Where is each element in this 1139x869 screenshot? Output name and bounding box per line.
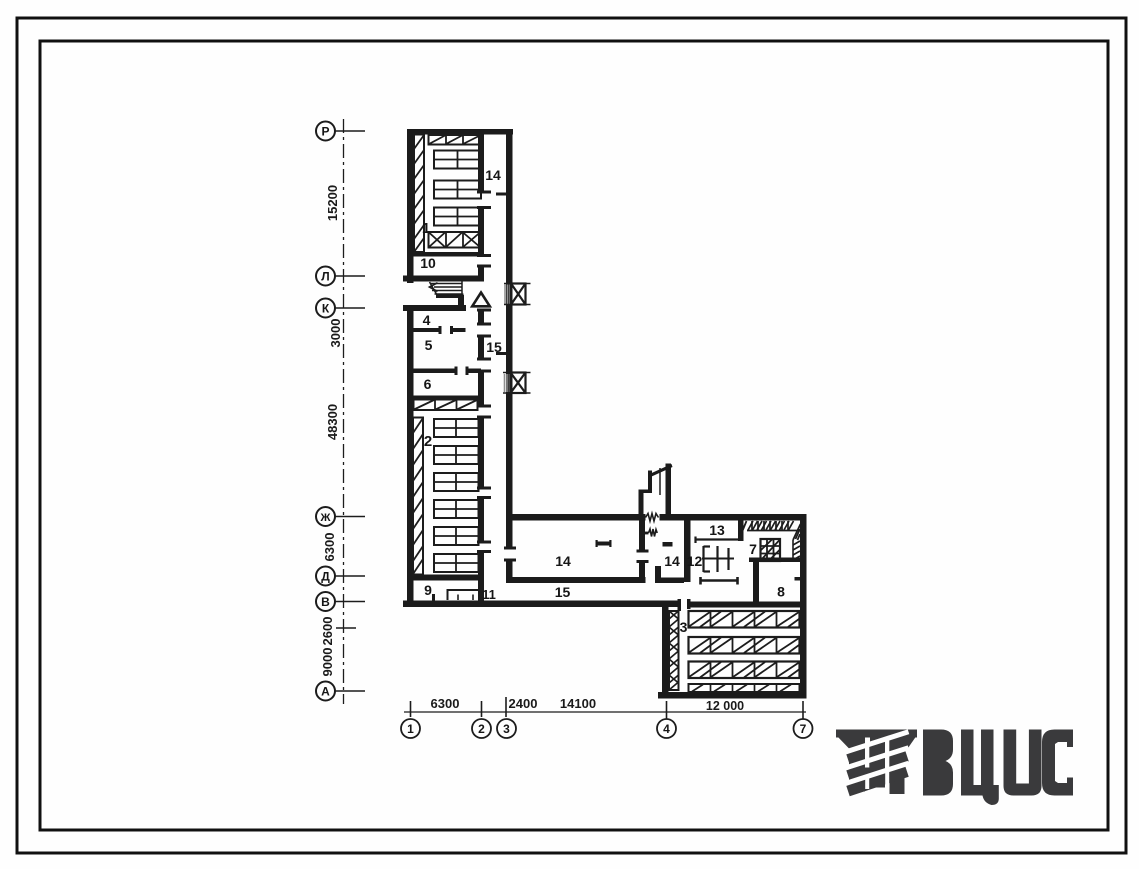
svg-text:2: 2 [478, 722, 485, 736]
svg-text:12 000: 12 000 [706, 699, 744, 713]
svg-text:6300: 6300 [322, 533, 337, 562]
svg-text:3: 3 [680, 619, 688, 635]
svg-text:15200: 15200 [325, 185, 340, 221]
svg-text:13: 13 [709, 522, 725, 538]
svg-text:10: 10 [420, 255, 436, 271]
svg-text:15: 15 [555, 584, 571, 600]
svg-text:Л: Л [321, 270, 329, 284]
svg-text:1: 1 [407, 722, 414, 736]
svg-text:9000: 9000 [320, 648, 335, 677]
svg-text:Р: Р [321, 125, 329, 139]
svg-text:2600: 2600 [320, 617, 335, 646]
svg-text:48300: 48300 [325, 404, 340, 440]
svg-text:15: 15 [486, 339, 502, 355]
svg-text:6: 6 [424, 376, 432, 392]
svg-text:7: 7 [800, 722, 807, 736]
svg-text:3000: 3000 [328, 319, 343, 348]
svg-text:В: В [321, 595, 330, 609]
svg-text:5: 5 [425, 337, 433, 353]
svg-text:14: 14 [485, 167, 501, 183]
svg-text:2: 2 [424, 433, 432, 450]
svg-text:14100: 14100 [560, 696, 596, 711]
svg-text:11: 11 [482, 587, 496, 602]
svg-text:14: 14 [664, 553, 680, 569]
svg-text:14: 14 [555, 553, 571, 569]
svg-text:6300: 6300 [431, 696, 460, 711]
svg-text:9: 9 [424, 582, 432, 598]
svg-text:4: 4 [423, 312, 431, 328]
svg-text:7: 7 [749, 541, 757, 557]
svg-text:Ж: Ж [320, 512, 331, 524]
svg-text:8: 8 [777, 584, 785, 600]
svg-text:Д: Д [321, 570, 330, 584]
svg-text:2400: 2400 [509, 696, 538, 711]
svg-text:4: 4 [663, 722, 670, 736]
svg-text:12: 12 [687, 553, 703, 569]
svg-text:3: 3 [503, 722, 510, 736]
svg-text:1: 1 [422, 220, 430, 237]
svg-text:А: А [321, 685, 330, 699]
svg-text:К: К [322, 302, 330, 316]
